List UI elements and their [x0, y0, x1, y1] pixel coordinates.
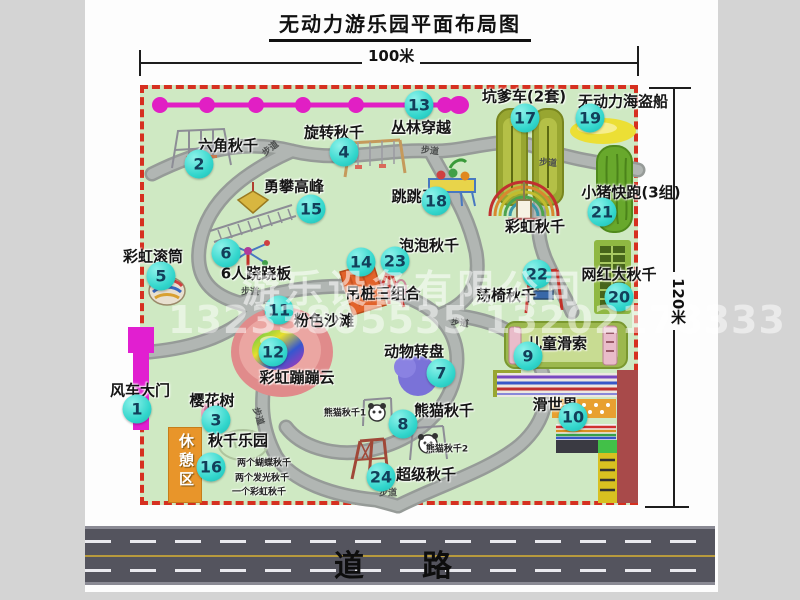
- swing-park-number: 16: [197, 453, 226, 482]
- rainbow-roller-number: 5: [147, 262, 176, 291]
- swing-park-note-2-label: 两个发光秋千: [235, 471, 289, 484]
- panda-swing-note-1-label: 熊猫秋千1: [324, 406, 366, 419]
- swing-park-note-3-label: 一个彩虹秋千: [232, 485, 286, 498]
- super-swing-label: 超级秋千: [396, 464, 456, 485]
- rainbow-bounce-cloud-number: 12: [259, 338, 288, 367]
- big-swing-number: 20: [605, 283, 634, 312]
- jungle-crossing-number: 13: [405, 91, 434, 120]
- page-title: 无动力游乐园平面布局图: [269, 8, 531, 42]
- dim-right-label: 120米: [668, 272, 689, 330]
- jumping-horse-number: 18: [422, 187, 451, 216]
- slide-world-number: 10: [559, 403, 588, 432]
- hanging-piles-combo-number: 14: [347, 248, 376, 277]
- animal-turntable-number: 7: [427, 359, 456, 388]
- dim-right-tick-top: [649, 87, 691, 89]
- rest-area-label: 休憩区: [176, 433, 197, 490]
- swing-park-label: 秋千乐园: [208, 430, 268, 451]
- rainbow-swing-label: 彩虹秋千: [505, 216, 565, 237]
- swing-chair-number: 22: [523, 260, 552, 289]
- rotating-swing-number: 4: [330, 138, 359, 167]
- animal-turntable-label: 动物转盘: [384, 341, 444, 362]
- trail-label-5: 步道: [450, 314, 470, 329]
- hex-swing-number: 2: [185, 150, 214, 179]
- super-swing-number: 24: [367, 463, 396, 492]
- road-label: 道 路: [85, 541, 715, 585]
- piggy-run-number: 21: [588, 198, 617, 227]
- rotating-swing-label: 旋转秋千: [304, 122, 364, 143]
- trail-label-4: 步道: [241, 285, 259, 298]
- big-swing-label: 网红大秋千: [581, 264, 656, 285]
- dim-right-tick-bottom: [645, 506, 689, 508]
- kids-zipline-number: 9: [514, 342, 543, 371]
- pink-beach-label: 粉色沙滩: [294, 310, 354, 331]
- swing-park-note-1-label: 两个蝴蝶秋千: [237, 456, 291, 469]
- panda-swing-number: 8: [389, 410, 418, 439]
- dim-top-tick-left: [139, 50, 141, 76]
- bubble-swing-label: 泡泡秋千: [399, 235, 459, 256]
- bubble-swing-number: 23: [381, 247, 410, 276]
- panda-swing-note-2-label: 熊猫秋千2: [426, 442, 468, 455]
- dim-top-tick-right: [637, 46, 639, 76]
- hanging-piles-combo-label: 吊桩三组合: [345, 283, 420, 304]
- windmill-gate-icon: [128, 327, 154, 353]
- six-seesaw-number: 6: [212, 239, 241, 268]
- dim-top-label: 100米: [362, 45, 420, 66]
- pink-beach-number: 11: [265, 296, 294, 325]
- trail-label-3: 步道: [539, 155, 558, 169]
- panda-swing-label: 熊猫秋千: [414, 400, 474, 421]
- peak-climbing-number: 15: [297, 195, 326, 224]
- road: 道 路: [85, 526, 715, 585]
- jungle-crossing-label: 丛林穿越: [391, 117, 451, 138]
- windmill-gate-number: 1: [123, 395, 152, 424]
- pirate-ship-number: 19: [576, 104, 605, 133]
- peak-climbing-label: 勇攀高峰: [264, 176, 324, 197]
- swing-chair-label: 荡椅秋千: [476, 285, 536, 306]
- trail-label-2: 步道: [420, 143, 439, 158]
- page-title-wrap: 无动力游乐园平面布局图: [0, 8, 800, 42]
- rainbow-bounce-cloud-label: 彩虹蹦蹦云: [259, 367, 334, 388]
- pit-car-number: 17: [511, 104, 540, 133]
- plan-canvas: 无动力游乐园平面布局图 100米 120米: [0, 0, 800, 600]
